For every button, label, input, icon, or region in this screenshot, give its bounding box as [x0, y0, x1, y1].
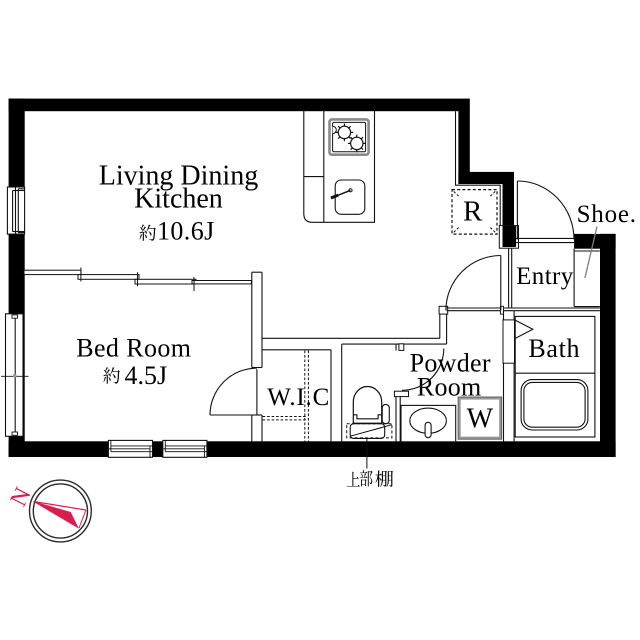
svg-text:W: W — [467, 404, 494, 435]
svg-text:Shoe.: Shoe. — [577, 201, 637, 228]
svg-text:Entry: Entry — [516, 263, 574, 290]
svg-text:W.I.C: W.I.C — [267, 384, 330, 411]
svg-text:10.6J: 10.6J — [157, 216, 215, 245]
svg-text:Kitchen: Kitchen — [134, 184, 223, 215]
svg-text:Bath: Bath — [528, 334, 580, 363]
svg-text:R: R — [463, 196, 483, 228]
svg-text:Room: Room — [417, 373, 482, 402]
svg-text:4.5J: 4.5J — [125, 361, 168, 390]
svg-text:Bed Room: Bed Room — [76, 333, 191, 362]
